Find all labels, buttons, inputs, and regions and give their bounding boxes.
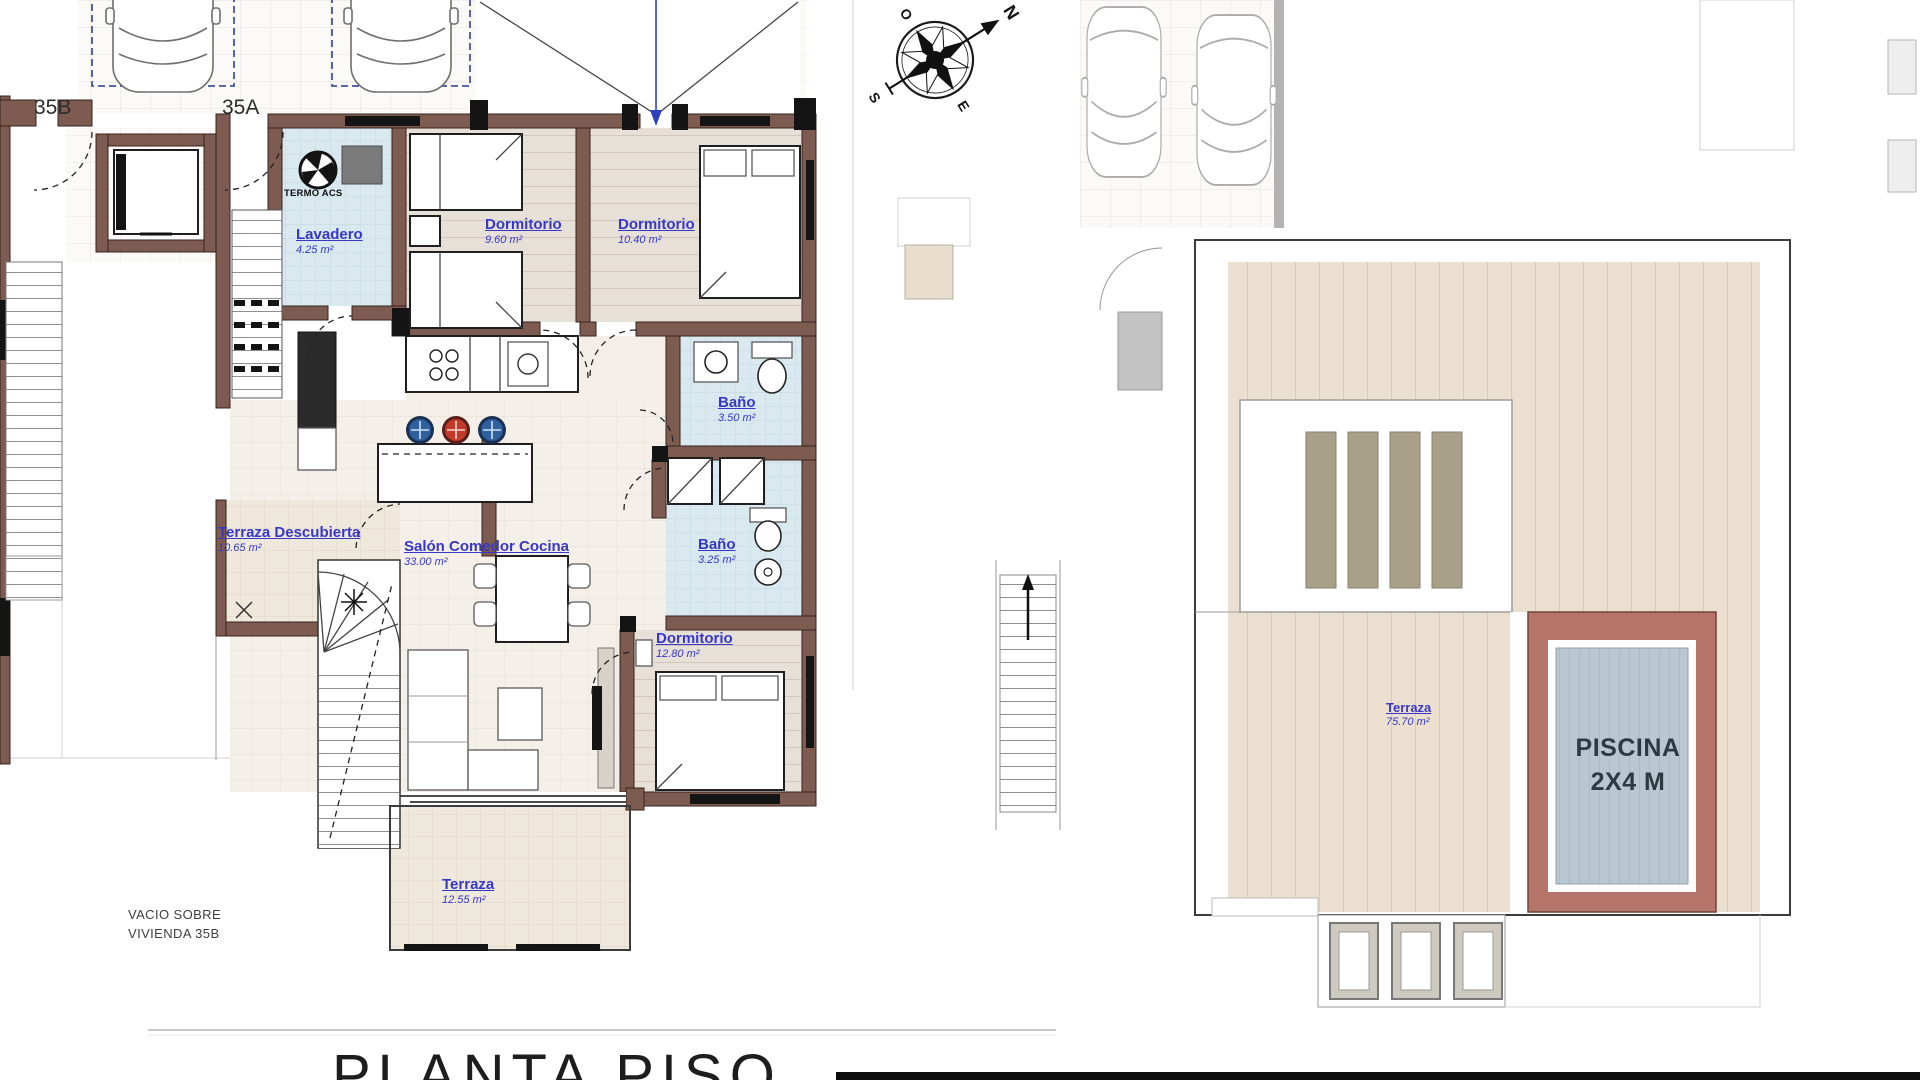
- car-icon: [1082, 7, 1166, 177]
- unit-label-35b: 35B: [34, 96, 71, 120]
- room-label-banio-1: Baño 3.50 m²: [718, 394, 756, 424]
- plan-title: PLANTA PISO: [332, 1042, 782, 1080]
- plan-left: [0, 0, 1056, 1035]
- compass-east-label: E: [954, 98, 973, 114]
- roof-terrace: [1195, 240, 1790, 915]
- sheet-frame-line: [836, 1072, 1920, 1080]
- compass-south-label: S: [866, 89, 885, 105]
- room-label-salon: Salón Comedor Cocina 33.00 m²: [404, 538, 569, 568]
- compass-rose: N S O E: [837, 0, 1051, 152]
- compass-west-label: O: [897, 5, 916, 23]
- room-label-roof-terraza: Terraza 75.70 m²: [1386, 700, 1431, 728]
- room-label-banio-2: Baño 3.25 m²: [698, 536, 736, 566]
- sink-icon: [508, 342, 548, 386]
- room-label-dormitorio-3: Dormitorio 12.80 m²: [656, 630, 733, 660]
- car-icon: [106, 0, 220, 92]
- termo-acs-label: TERMO ACS: [284, 188, 342, 199]
- entry-arrow-icon: [650, 110, 662, 126]
- solarium-stair: [996, 560, 1060, 830]
- tv-icon: [592, 686, 602, 750]
- room-label-dormitorio-1: Dormitorio 9.60 m²: [485, 216, 562, 246]
- bedroom2-furniture: [700, 146, 800, 298]
- room-label-terraza-descubierta: Terraza Descubierta 10.65 m²: [218, 524, 360, 554]
- plan-right: [898, 0, 1916, 1007]
- car-icon: [344, 0, 458, 92]
- bar-stools: [406, 416, 506, 444]
- exterior-stairs: [6, 262, 62, 600]
- interior-stair: [232, 210, 282, 398]
- north-arrowhead-icon: [980, 14, 1003, 35]
- pool-label: PISCINA 2X4 M: [1548, 732, 1708, 800]
- car-icon: [1192, 15, 1276, 185]
- curved-stair: [318, 560, 400, 848]
- compass-north-label: N: [999, 1, 1023, 23]
- room-label-dormitorio-2: Dormitorio 10.40 m²: [618, 216, 695, 246]
- elevator: [114, 150, 198, 234]
- room-label-lavadero: Lavadero 4.25 m²: [296, 226, 363, 256]
- room-label-terraza: Terraza 12.55 m²: [442, 876, 494, 906]
- void-note: VACIO SOBRE VIVIENDA 35B: [128, 906, 221, 944]
- unit-label-35a: 35A: [222, 96, 259, 120]
- floorplan-sheet: N S O E: [0, 0, 1920, 1080]
